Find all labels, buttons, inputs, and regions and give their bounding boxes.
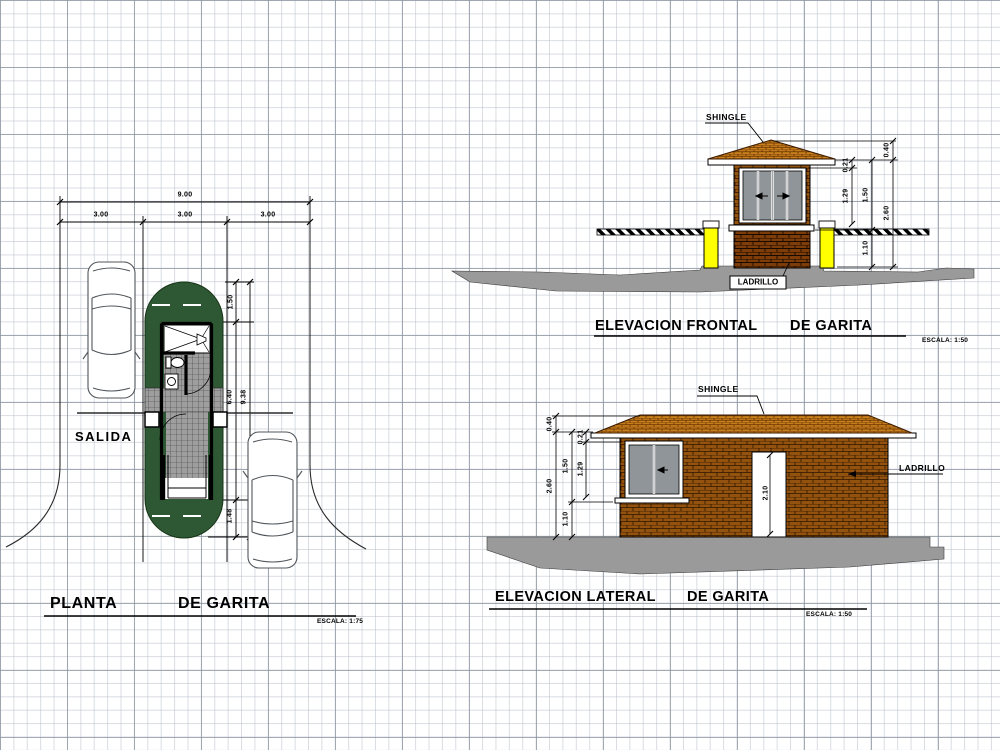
dim-lat-door: 2.10: [763, 486, 770, 501]
plan-view: [6, 196, 366, 616]
front-ground: [452, 266, 974, 292]
post-cap-left: [703, 221, 719, 228]
lateral-building: [591, 415, 916, 537]
dim-plan-total: 9.00: [178, 192, 193, 199]
gate-post-left-plan: [145, 412, 159, 427]
dim-island-length: 9.38: [241, 390, 248, 405]
front-building: [708, 140, 835, 268]
plan-title-left: PLANTA: [50, 595, 117, 613]
front-shingle-label: SHINGLE: [706, 112, 747, 122]
front-fascia: [708, 159, 835, 165]
front-roof: [708, 140, 835, 159]
corridor-floor: [166, 412, 208, 478]
front-lower-wall: [734, 231, 810, 268]
lateral-title-right: DE GARITA: [687, 589, 769, 605]
post-cap-right: [819, 221, 835, 228]
lateral-title-left: ELEVACION LATERAL: [495, 589, 656, 605]
dim-plan-lane-1: 3.00: [94, 212, 109, 219]
front-shingle-leader: [705, 123, 763, 142]
gate-post-right: [820, 228, 834, 268]
cad-drawing: [0, 0, 1000, 750]
lateral-shingle-leader: [697, 396, 764, 414]
dim-island-bottom: 1.48: [227, 509, 234, 524]
dim-lat-wall: 1.10: [563, 512, 570, 527]
sink: [165, 374, 178, 389]
lateral-sill: [615, 498, 689, 503]
lateral-ground: [487, 537, 944, 574]
front-ladrillo-label: LADRILLO: [738, 278, 778, 287]
lateral-elevation: [487, 396, 944, 609]
lateral-roof: [595, 415, 912, 433]
lateral-ladrillo-label: LADRILLO: [899, 463, 945, 473]
dim-lat-total: 2.60: [547, 479, 554, 494]
front-scale: ESCALA: 1:50: [922, 337, 968, 344]
dim-lat-window: 1.29: [578, 462, 585, 477]
plan-title-right: DE GARITA: [178, 595, 270, 613]
toilet: [166, 357, 184, 368]
dim-front-wall: 1.10: [863, 241, 870, 256]
lateral-shingle-label: SHINGLE: [698, 384, 739, 394]
car-entering: [83, 262, 140, 398]
lateral-fascia: [591, 433, 916, 438]
front-title-right: DE GARITA: [790, 318, 872, 334]
gate-post-right-plan: [213, 412, 227, 427]
salida-label: SALIDA: [75, 429, 132, 444]
dim-plan-lane-2: 3.00: [178, 212, 193, 219]
lateral-scale: ESCALA: 1:50: [806, 611, 852, 618]
dim-lat-eave-band: 0.21: [578, 430, 585, 445]
gate-post-left: [704, 228, 718, 268]
dim-island-top: 1.50: [228, 295, 235, 310]
car-exiting: [243, 432, 302, 568]
dim-front-eave-band: 0.21: [843, 158, 850, 173]
dim-front-roof: 0.40: [884, 143, 891, 158]
cad-sheet: 9.00 3.00 3.00 3.00 1.50 6.40 9.38 1.48 …: [0, 0, 1000, 750]
dim-building-length: 6.40: [227, 390, 234, 405]
barrier-arm-left: [597, 229, 704, 235]
dim-lat-roof: 0.40: [547, 417, 554, 432]
dim-front-total: 2.60: [884, 206, 891, 221]
front-sill-band: [729, 225, 814, 231]
front-title-left: ELEVACION FRONTAL: [595, 318, 758, 334]
dim-plan-lane-3: 3.00: [261, 212, 276, 219]
dim-front-opening: 1.50: [863, 188, 870, 203]
plan-scale: ESCALA: 1:75: [317, 618, 363, 625]
front-elevation: [452, 123, 974, 336]
dim-lat-opening: 1.50: [563, 459, 570, 474]
dim-front-window: 1.29: [843, 189, 850, 204]
